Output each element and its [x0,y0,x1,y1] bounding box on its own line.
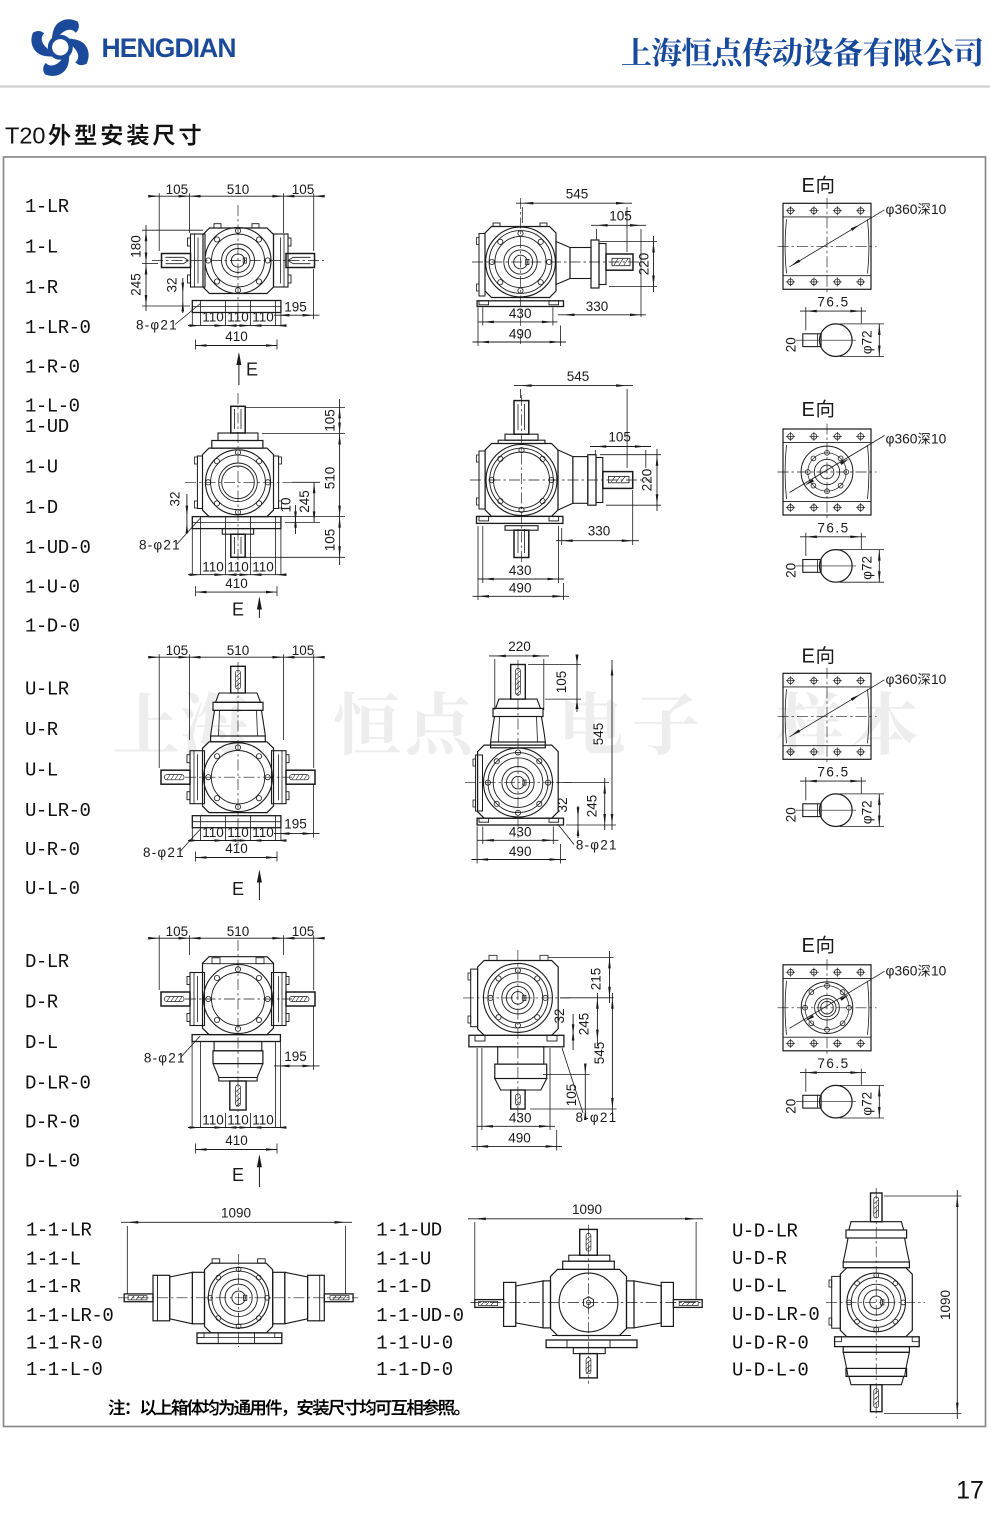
svg-text:U-D-LR-0: U-D-LR-0 [732,1304,819,1326]
svg-text:U-D-R: U-D-R [732,1248,787,1270]
svg-text:245: 245 [585,795,600,818]
svg-text:105: 105 [292,643,315,658]
svg-text:410: 410 [225,1133,248,1148]
svg-text:110: 110 [202,560,224,575]
svg-text:76.5: 76.5 [817,1056,849,1071]
svg-text:1-1-L-0: 1-1-L-0 [26,1359,102,1381]
svg-text:E: E [802,935,815,957]
svg-text:HENGDIAN: HENGDIAN [102,33,236,63]
svg-text:330: 330 [588,524,611,539]
svg-text:1-1-LR-0: 1-1-LR-0 [26,1305,113,1327]
svg-text:1-U: 1-U [25,456,58,478]
svg-text:1-LR-0: 1-LR-0 [25,317,91,339]
svg-text:195: 195 [284,817,307,832]
svg-text:220: 220 [637,253,652,276]
svg-text:1-1-U-0: 1-1-U-0 [376,1332,452,1354]
svg-text:105: 105 [323,409,338,432]
svg-text:1-R-0: 1-R-0 [25,356,80,378]
svg-text:32: 32 [555,797,570,812]
svg-text:410: 410 [225,329,248,344]
svg-text:1-U-0: 1-U-0 [25,576,80,598]
svg-text:1090: 1090 [221,1205,251,1220]
svg-text:8-φ21: 8-φ21 [143,845,185,860]
svg-text:U-L-0: U-L-0 [25,878,80,900]
svg-text:φ72: φ72 [860,330,875,354]
svg-text:20: 20 [784,337,799,352]
svg-text:110: 110 [202,825,224,840]
svg-text:105: 105 [564,1084,579,1107]
svg-text:110: 110 [252,560,274,575]
svg-text:245: 245 [129,273,144,296]
svg-text:1-1-LR: 1-1-LR [26,1220,92,1242]
svg-text:8-φ21: 8-φ21 [136,318,178,333]
svg-text:20: 20 [784,1099,799,1114]
svg-text:1-D: 1-D [25,497,58,519]
svg-text:D-L-0: D-L-0 [25,1151,80,1173]
svg-text:410: 410 [225,576,248,591]
svg-text:1-L-0: 1-L-0 [25,395,80,417]
svg-text:545: 545 [567,369,590,384]
svg-text:8-φ21: 8-φ21 [576,838,618,853]
svg-text:U-D-LR: U-D-LR [732,1220,798,1242]
svg-text:510: 510 [323,467,338,490]
svg-text:76.5: 76.5 [817,295,849,310]
svg-text:8-φ21: 8-φ21 [576,1110,618,1125]
svg-text:D-LR-0: D-LR-0 [25,1072,91,1094]
svg-text:D-L: D-L [25,1032,58,1054]
svg-text:245: 245 [577,1013,592,1036]
svg-text:φ72: φ72 [860,1092,875,1116]
svg-text:105: 105 [292,182,315,197]
svg-text:U-L: U-L [25,759,58,781]
svg-text:φ72: φ72 [860,800,875,824]
svg-text:430: 430 [509,563,532,578]
svg-text:110: 110 [252,825,274,840]
svg-text:1-R: 1-R [25,277,58,299]
svg-text:1-1-D-0: 1-1-D-0 [376,1359,452,1381]
svg-text:215: 215 [589,968,604,991]
svg-text:E: E [232,879,244,899]
svg-text:20: 20 [784,563,799,578]
svg-text:220: 220 [508,639,531,654]
svg-text:1-1-R-0: 1-1-R-0 [26,1332,102,1354]
svg-text:10: 10 [931,964,947,979]
svg-text:E: E [246,360,258,380]
svg-text:1-1-UD-0: 1-1-UD-0 [376,1305,463,1327]
svg-text:8-φ21: 8-φ21 [139,538,181,553]
svg-text:E: E [802,399,815,421]
svg-text:E: E [232,1165,244,1185]
svg-text:105: 105 [166,924,189,939]
svg-text:105: 105 [323,529,338,552]
svg-text:245: 245 [297,490,312,513]
svg-text:1-1-D: 1-1-D [376,1276,431,1298]
svg-text:105: 105 [292,924,315,939]
svg-text:105: 105 [609,209,632,224]
svg-text:φ360: φ360 [886,202,918,217]
svg-text:1-1-UD: 1-1-UD [376,1220,442,1242]
svg-text:510: 510 [227,924,250,939]
svg-text:U-D-L-0: U-D-L-0 [732,1360,808,1382]
svg-text:φ360: φ360 [886,964,918,979]
svg-text:545: 545 [592,1042,607,1065]
svg-text:1-UD: 1-UD [25,416,69,438]
svg-text:545: 545 [591,723,606,746]
svg-text:490: 490 [509,581,532,596]
svg-text:105: 105 [608,430,631,445]
svg-text:510: 510 [227,643,250,658]
svg-text:430: 430 [509,1111,532,1126]
svg-text:1-D-0: 1-D-0 [25,615,80,637]
svg-text:110: 110 [252,1112,274,1127]
svg-text:φ72: φ72 [860,556,875,580]
svg-text:110: 110 [202,1112,224,1127]
svg-text:110: 110 [227,825,249,840]
svg-text:110: 110 [227,310,249,325]
svg-text:20: 20 [784,807,799,822]
svg-text:φ360: φ360 [886,672,918,687]
svg-text:D-R: D-R [25,992,58,1014]
svg-text:U-R: U-R [25,719,58,741]
svg-text:10: 10 [931,432,947,447]
svg-text:1-1-U: 1-1-U [376,1249,431,1271]
svg-text:8-φ21: 8-φ21 [144,1051,186,1066]
svg-text:U-R-0: U-R-0 [25,839,80,861]
svg-text:10: 10 [279,497,294,512]
svg-text:D-LR: D-LR [25,951,69,973]
svg-text:195: 195 [284,300,307,315]
svg-text:76.5: 76.5 [817,765,849,780]
svg-text:430: 430 [509,825,532,840]
svg-text:E: E [232,600,244,620]
svg-text:E: E [802,175,815,197]
svg-text:110: 110 [227,1112,249,1127]
svg-text:76.5: 76.5 [817,520,849,535]
svg-text:105: 105 [166,182,189,197]
svg-text:32: 32 [168,491,183,506]
svg-text:110: 110 [227,560,249,575]
svg-text:220: 220 [640,469,655,492]
svg-text:T20: T20 [5,123,46,149]
svg-text:410: 410 [225,841,248,856]
svg-text:1090: 1090 [938,1290,953,1320]
svg-text:U-D-L: U-D-L [732,1275,787,1297]
svg-text:U-LR-0: U-LR-0 [25,800,91,822]
svg-text:10: 10 [931,672,947,687]
svg-text:D-R-0: D-R-0 [25,1111,80,1133]
svg-text:490: 490 [508,1131,531,1146]
svg-text:1090: 1090 [572,1202,602,1217]
svg-text:U-D-R-0: U-D-R-0 [732,1332,808,1354]
svg-text:1-L: 1-L [25,236,58,258]
svg-text:110: 110 [202,310,224,325]
svg-text:E: E [802,646,815,668]
svg-text:330: 330 [586,299,609,314]
svg-text:φ360: φ360 [886,432,918,447]
svg-text:490: 490 [509,844,532,859]
svg-text:490: 490 [509,326,532,341]
svg-text:1-1-L: 1-1-L [26,1249,81,1271]
svg-text:180: 180 [129,235,144,258]
svg-text:10: 10 [931,202,947,217]
svg-text:430: 430 [509,306,532,321]
svg-text:17: 17 [956,1477,984,1505]
svg-text:105: 105 [554,671,569,694]
svg-text:110: 110 [252,310,274,325]
svg-text:U-LR: U-LR [25,679,69,701]
svg-text:105: 105 [166,643,189,658]
svg-text:195: 195 [284,1049,307,1064]
svg-text:510: 510 [227,182,250,197]
svg-text:32: 32 [552,1008,567,1023]
svg-text:545: 545 [566,187,589,202]
svg-text:1-1-R: 1-1-R [26,1276,81,1298]
svg-text:32: 32 [165,277,180,292]
svg-text:1-UD-0: 1-UD-0 [25,537,91,559]
svg-text:1-LR: 1-LR [25,196,69,218]
